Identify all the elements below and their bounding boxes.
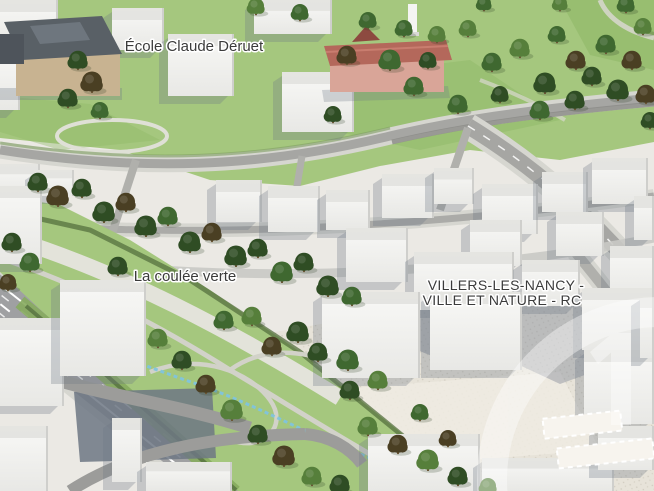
map-3d-view[interactable]: École Claude Déruet La coulée verte VILL… <box>0 0 654 491</box>
building-block <box>51 280 146 384</box>
building-block <box>259 186 320 240</box>
building-block <box>547 212 604 264</box>
building-block <box>137 462 232 491</box>
school-building <box>0 16 122 100</box>
label-development-line2: VILLE ET NATURE - RC <box>423 292 582 308</box>
building-block <box>313 292 420 386</box>
building-block <box>373 174 434 226</box>
building-block <box>0 426 48 491</box>
building-block <box>103 418 142 490</box>
label-school: École Claude Déruet <box>125 38 264 55</box>
label-development-line1: VILLERS-LES-NANCY - <box>428 277 584 293</box>
building-block <box>207 180 262 230</box>
label-park: La coulée verte <box>134 268 237 285</box>
building-block <box>337 228 408 290</box>
